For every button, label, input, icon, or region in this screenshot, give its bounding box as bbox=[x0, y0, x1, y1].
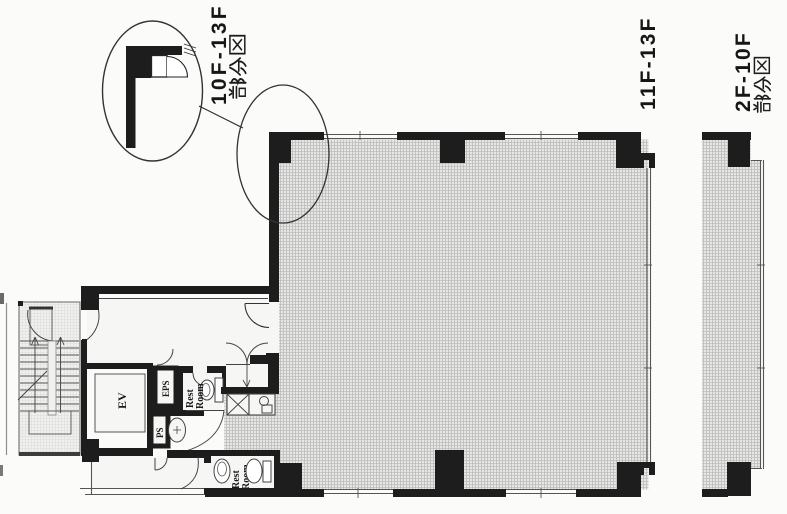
svg-text:11F-13F: 11F-13F bbox=[637, 16, 660, 110]
svg-text:Room: Room bbox=[195, 383, 206, 409]
svg-text:PS: PS bbox=[155, 427, 165, 438]
svg-text:2F-10F: 2F-10F bbox=[732, 31, 755, 112]
svg-text:10F-13F: 10F-13F bbox=[208, 3, 231, 105]
svg-text:EV: EV bbox=[115, 392, 129, 409]
svg-text:EPS: EPS bbox=[161, 380, 171, 397]
